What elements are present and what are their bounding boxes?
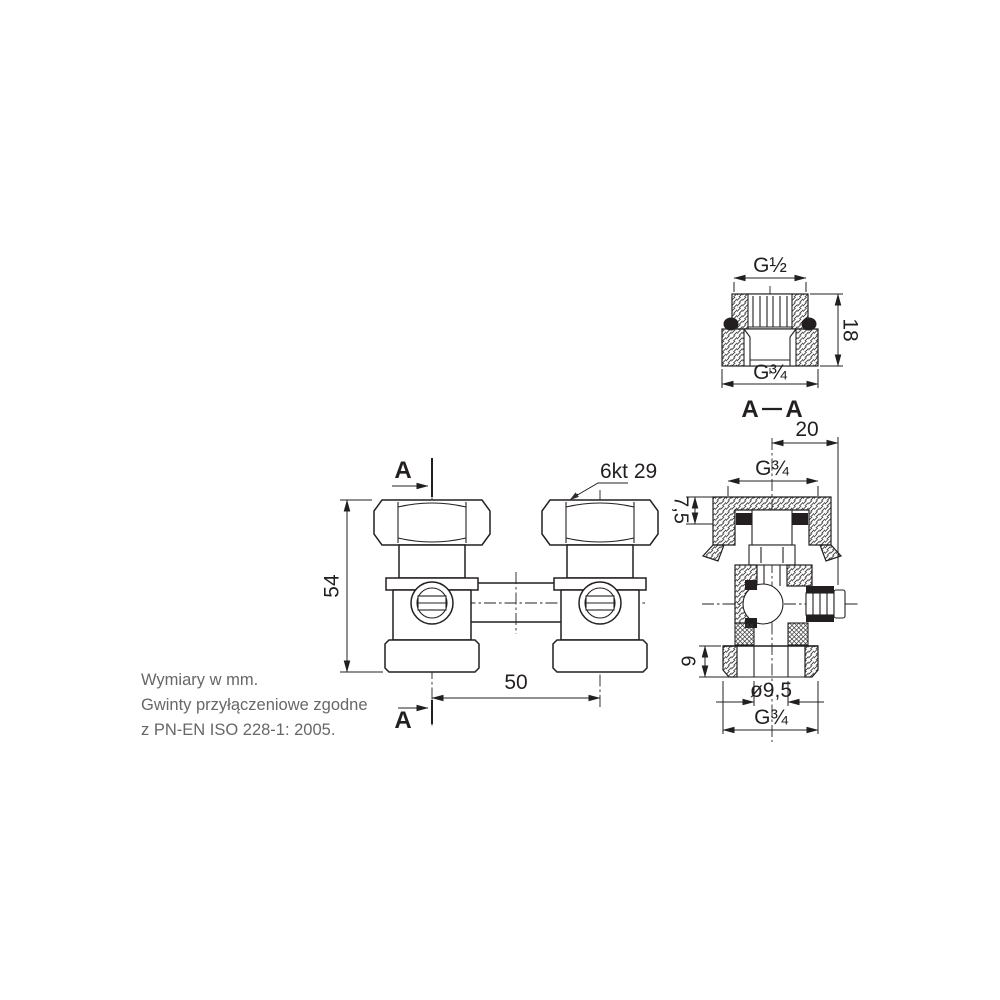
dim-9-label: 9 <box>678 655 700 666</box>
dim-18-label: 18 <box>838 318 861 341</box>
dim-g34-bottom-label: G¾ <box>754 706 788 729</box>
section-title: A A <box>741 396 802 423</box>
hex-size-label: 6kt 29 <box>600 460 657 483</box>
notes-block: Wymiary w mm. Gwinty przyłączeniowe zgod… <box>141 668 368 743</box>
front-view: A A 54 50 6kt 29 <box>321 457 658 734</box>
section-letter-top: A <box>394 457 411 484</box>
hex-size-callout: 6kt 29 <box>570 460 657 500</box>
section-packing-right <box>788 623 808 645</box>
dim-20-label: 20 <box>795 418 818 441</box>
notes-line-3: z PN-EN ISO 228-1: 2005. <box>141 718 368 743</box>
dim-50-label: 50 <box>504 671 527 694</box>
technical-drawing: A A 54 50 6kt 29 <box>0 0 1000 1000</box>
left-valve <box>374 500 490 672</box>
section-mark-top: A <box>392 457 432 497</box>
dim-50: 50 <box>432 671 600 698</box>
section-body-wall-right <box>787 565 812 586</box>
dim-7-5-label: 7,5 <box>670 496 692 524</box>
dim-bore-label: ø9,5 <box>750 679 792 702</box>
drawing-canvas: A A 54 50 6kt 29 <box>0 0 1000 1000</box>
right-valve <box>542 500 658 672</box>
section-gasket-left <box>736 513 752 525</box>
section-bonnet <box>752 510 792 545</box>
section-seat-upper <box>745 580 757 590</box>
section-view: 20 G¾ 7,5 9 ø9,5 <box>670 418 858 742</box>
hex-nut <box>374 500 490 545</box>
section-mark-bottom: A <box>394 700 432 734</box>
section-packing-left <box>735 623 754 645</box>
section-side-outlet <box>806 586 845 622</box>
section-nut-skirt-left <box>703 545 724 561</box>
notes-line-1: Wymiary w mm. <box>141 668 368 693</box>
dim-g34-top-label: G¾ <box>755 457 789 480</box>
section-gasket-right <box>792 513 808 525</box>
section-tail <box>723 646 818 677</box>
notes-line-2: Gwinty przyłączeniowe zgodne <box>141 693 368 718</box>
dim-g34-top: G¾ <box>728 457 818 496</box>
dim-g34-adapter-label: G¾ <box>753 361 787 384</box>
hex-nut <box>542 500 658 545</box>
valve-tail-nut <box>553 640 647 672</box>
valve-tail-nut <box>385 640 479 672</box>
dim-7-5: 7,5 <box>670 496 713 524</box>
dim-54-label: 54 <box>321 574 344 598</box>
section-letter-bottom: A <box>394 707 411 734</box>
section-bonnet-hex <box>749 545 795 565</box>
dim-9: 9 <box>678 646 729 677</box>
dim-g-half-label: G½ <box>753 254 787 277</box>
valve-neck <box>567 545 633 578</box>
section-title-a-left: A <box>741 396 758 423</box>
dim-bore: ø9,5 <box>716 679 824 706</box>
valve-neck <box>399 545 465 578</box>
adapter-view: G½ 18 G¾ <box>722 254 861 388</box>
section-outlet-tip <box>834 590 845 618</box>
